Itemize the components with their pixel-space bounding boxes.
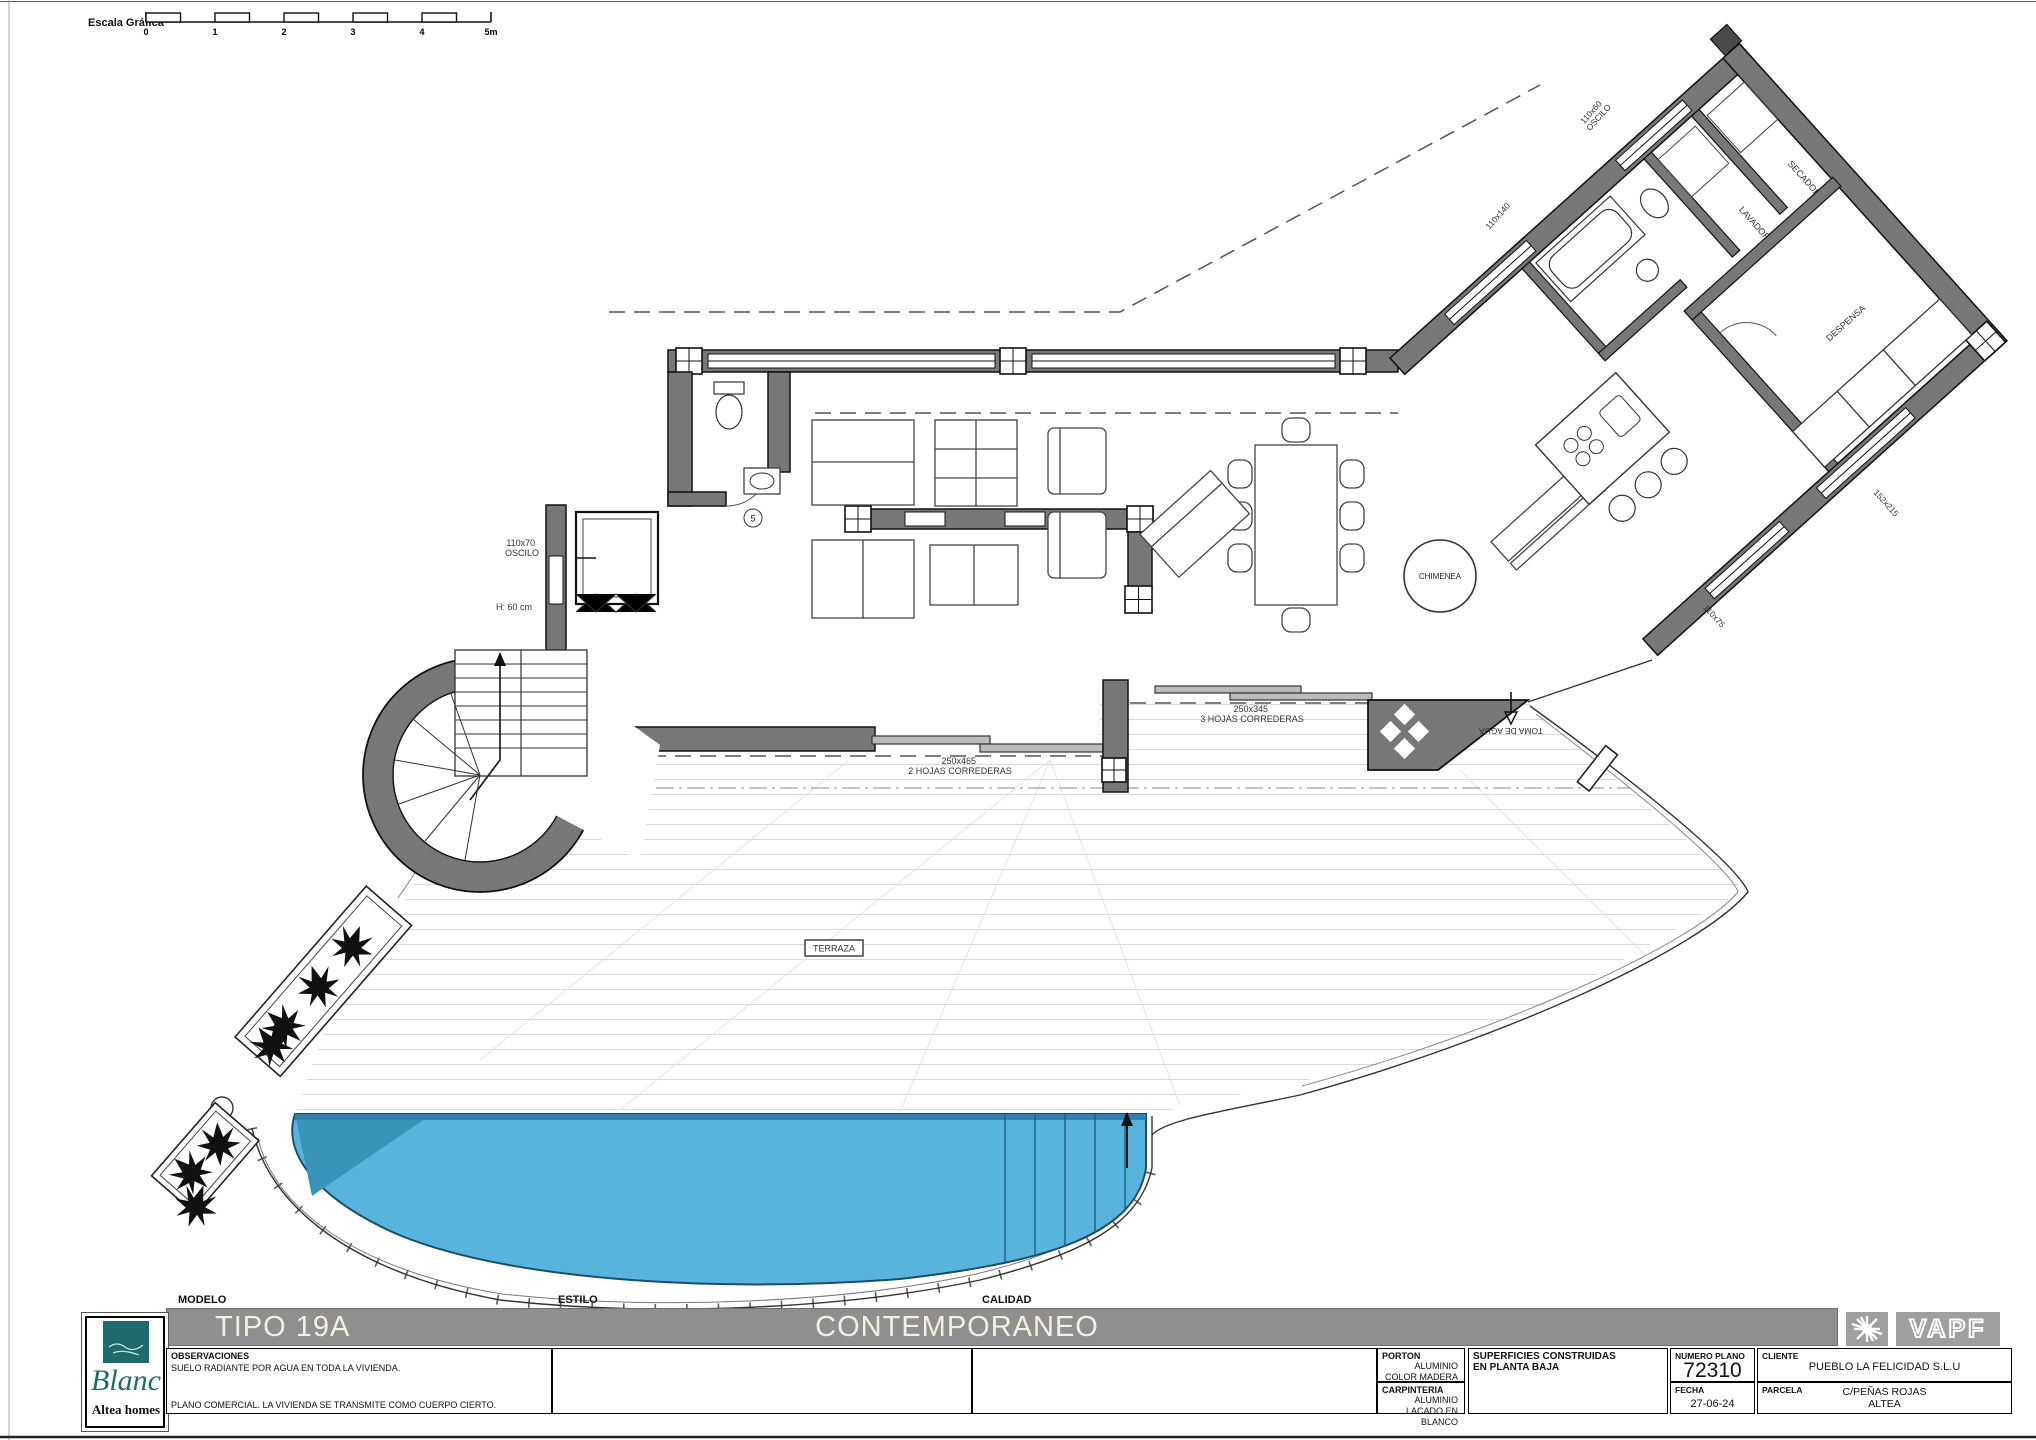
- porton-box: PORTON ALUMINIO COLOR MADERA: [1377, 1348, 1465, 1382]
- brand-tagline: Altea homes: [87, 1402, 165, 1418]
- label-terraza-box: TERRAZA: [805, 940, 863, 956]
- fecha-value: 27-06-24: [1671, 1395, 1754, 1410]
- modelo-label: MODELO: [178, 1294, 226, 1306]
- brand-logo: Blanc Altea homes: [85, 1316, 165, 1428]
- tag-number: 5: [750, 514, 755, 524]
- scale-tick: 0: [143, 27, 148, 37]
- empty-box-1: [552, 1348, 972, 1414]
- brand-art-icon: [103, 1321, 149, 1363]
- dining-set: [1228, 418, 1364, 632]
- elevator: [576, 512, 658, 604]
- label-window-right-b: 110x75: [1701, 603, 1727, 630]
- entrance-core: [546, 505, 658, 650]
- label-toma-agua: TOMA DE AGUA: [1479, 726, 1543, 736]
- bedroom-kitchen-wing: LAVADORA SECADORA DESPENSA: [1390, 44, 2007, 656]
- scale-tick: 3: [350, 27, 355, 37]
- porton-label: PORTON: [1378, 1349, 1464, 1361]
- label-window-right-a: 152x215: [1872, 488, 1901, 519]
- fireplace-area: CHIMENEA: [1140, 461, 1606, 612]
- vapf-wordmark: VAPF: [1896, 1312, 2000, 1346]
- modelo-value: TIPO 19A: [215, 1311, 350, 1344]
- estilo-value: CONTEMPORANEO: [617, 1311, 1297, 1344]
- superficies-label: SUPERFICIES CONSTRUIDAS: [1469, 1349, 1667, 1362]
- superficies-line2: EN PLANTA BAJA: [1469, 1362, 1667, 1373]
- overhang-dashed-lines: [600, 85, 1540, 756]
- planter-lower: [151, 1100, 263, 1234]
- label-wall-height: H: 60 cm: [496, 602, 532, 612]
- sliding-leaf: [1230, 693, 1372, 700]
- plan-sheet: Escala Gráfica 0 1 2 3 4 5m: [0, 0, 2036, 1440]
- label-terraza: TERRAZA: [813, 944, 855, 954]
- brand-name: Blanc: [87, 1366, 165, 1396]
- estilo-label: ESTILO: [558, 1294, 598, 1306]
- label-despensa: DESPENSA: [1824, 303, 1867, 343]
- scale-tick: 5m: [484, 27, 497, 37]
- scale-tick: 4: [419, 27, 424, 37]
- sliding-leaf: [980, 744, 1103, 752]
- parcela-box: PARCELA C/PEÑAS ROJAS ALTEA: [1757, 1382, 2012, 1414]
- pool: [292, 1112, 1146, 1284]
- cliente-label: CLIENTE: [1758, 1349, 2011, 1361]
- label-chimenea: CHIMENEA: [1419, 572, 1462, 581]
- porton-line1: ALUMINIO: [1378, 1361, 1464, 1372]
- observaciones-label: OBSERVACIONES: [167, 1349, 551, 1361]
- parcela-label: PARCELA: [1758, 1383, 1802, 1395]
- fecha-label: FECHA: [1671, 1383, 1754, 1395]
- carpinteria-line1: ALUMINIO: [1378, 1395, 1464, 1406]
- floor-plan-drawing: Escala Gráfica 0 1 2 3 4 5m: [0, 0, 2036, 1440]
- observaciones-line2: PLANO COMERCIAL. LA VIVIENDA SE TRANSMIT…: [171, 1400, 496, 1410]
- superficies-box: SUPERFICIES CONSTRUIDAS EN PLANTA BAJA: [1468, 1348, 1668, 1414]
- numero-plano-value: 72310: [1671, 1361, 1754, 1381]
- scale-tick: 1: [212, 27, 217, 37]
- sliding-leaf: [872, 736, 990, 744]
- calidad-label: CALIDAD: [982, 1294, 1032, 1306]
- observaciones-line1: SUELO RADIANTE POR AGUA EN TODA LA VIVIE…: [167, 1361, 551, 1373]
- carpinteria-line2: LACADO EN BLANCO: [1378, 1406, 1464, 1428]
- vapf-sun-icon: [1846, 1312, 1888, 1346]
- numero-plano-box: NUMERO PLANO 72310: [1670, 1348, 1755, 1382]
- cliente-value: PUEBLO LA FELICIDAD S.L.U: [1758, 1361, 2011, 1373]
- carpinteria-label: CARPINTERIA: [1378, 1383, 1464, 1395]
- scale-tick: 2: [281, 27, 286, 37]
- label-window-top: 110x60 OSCILO: [1577, 96, 1613, 133]
- toilet-icon: [714, 382, 744, 429]
- observaciones-box: OBSERVACIONES SUELO RADIANTE POR AGUA EN…: [166, 1348, 552, 1414]
- toilet-icon: [1635, 183, 1674, 223]
- carpinteria-box: CARPINTERIA ALUMINIO LACADO EN BLANCO: [1377, 1382, 1465, 1414]
- sliding-leaf: [1155, 686, 1301, 693]
- washbasin-icon: [1632, 255, 1663, 286]
- scale-bar: Escala Gráfica 0 1 2 3 4 5m: [88, 12, 498, 37]
- empty-box-2: [972, 1348, 1377, 1414]
- fecha-box: FECHA 27-06-24: [1670, 1382, 1755, 1414]
- washbasin-icon: [744, 468, 780, 494]
- label-window-wing: 110x140: [1483, 201, 1512, 232]
- cliente-box: CLIENTE PUEBLO LA FELICIDAD S.L.U: [1757, 1348, 2012, 1382]
- parcela-line2: ALTEA: [1758, 1398, 2011, 1410]
- model-style-bar: TIPO 19A CONTEMPORANEO: [166, 1308, 1838, 1346]
- label-window-left: 110x70 OSCILO: [505, 538, 539, 558]
